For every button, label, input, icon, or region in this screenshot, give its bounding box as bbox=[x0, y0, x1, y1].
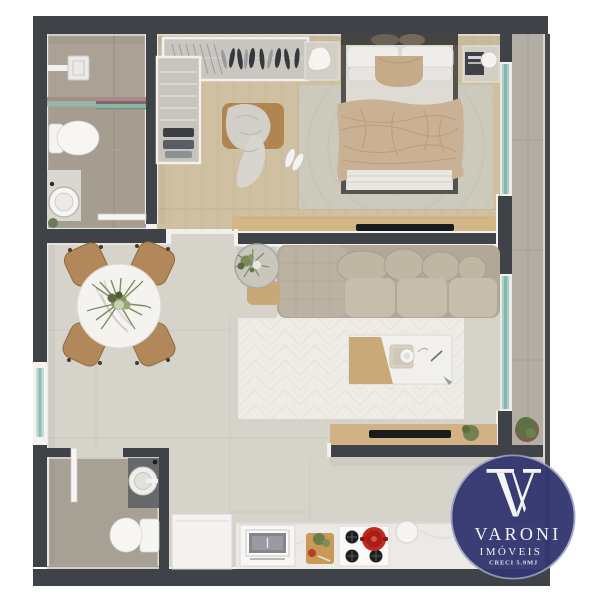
svg-text:VARONI: VARONI bbox=[475, 524, 562, 544]
svg-text:CRECI 5.9MJ: CRECI 5.9MJ bbox=[489, 560, 538, 567]
svg-text:IMÓVEIS: IMÓVEIS bbox=[480, 546, 543, 558]
